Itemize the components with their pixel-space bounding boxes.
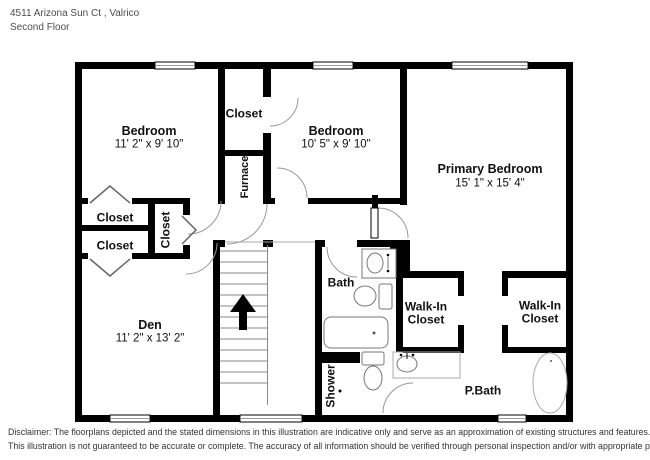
closet-hall-label: Closet [159, 212, 172, 249]
disclaimer-line2: This illustration is not guaranteed to b… [8, 441, 650, 451]
disclaimer-line1: Disclaimer: The floorplans depicted and … [8, 427, 650, 437]
walk-in-closet-right-label: Walk-In Closet [509, 300, 571, 327]
furnace-label: Furnace [239, 156, 251, 199]
closet-door-arc [270, 98, 298, 126]
shower-label: Shower [324, 364, 337, 407]
closet-left-upper-label: Closet [97, 211, 134, 224]
bath-sink-icon [362, 249, 396, 278]
bath-toilet-icon [354, 284, 392, 309]
wc-toilet-icon [362, 352, 384, 390]
staircase [220, 242, 315, 405]
bifold-closet-upper-icon [90, 186, 130, 203]
interior-walls [82, 69, 566, 415]
primary-bedroom-dims: 15' 1" x 15' 4" [455, 178, 524, 191]
bedroom1-label: Bedroom [122, 124, 177, 138]
den-dims: 11' 2" x 13' 2" [116, 333, 185, 346]
wc-door-arc [383, 383, 413, 413]
bedroom2-label: Bedroom [309, 124, 364, 138]
primary-bath-label: P.Bath [465, 384, 501, 397]
furnace-door-arc [227, 204, 267, 244]
pbath-vanity-sink-icon [393, 352, 460, 378]
stairs-up-arrow-icon [230, 294, 256, 330]
header-address: 4511 Arizona Sun Ct , Valrico [10, 8, 139, 19]
bifold-hall-closet-icon [182, 216, 196, 244]
bifold-closet-lower-icon [90, 259, 130, 276]
den-door-arc [186, 243, 217, 274]
closet-left-lower-label: Closet [97, 239, 134, 252]
closet-top-label: Closet [226, 107, 263, 120]
primary-door-leaf [371, 208, 378, 238]
bedroom2-dims: 10' 5" x 9' 10" [301, 139, 370, 152]
pbath-tub-icon [533, 353, 567, 413]
bedroom1-dims: 11' 2" x 9' 10" [115, 139, 184, 152]
bath-label: Bath [328, 276, 355, 289]
bath-door-arc [327, 247, 357, 277]
floorplan-page: 4511 Arizona Sun Ct , Valrico Second Flo… [0, 0, 650, 460]
primary-door-arc [378, 208, 408, 238]
header-floor: Second Floor [10, 22, 69, 33]
bedroom2-door-arc [277, 168, 307, 198]
primary-bedroom-label: Primary Bedroom [438, 162, 543, 176]
den-label: Den [138, 318, 162, 332]
shower-drain-icon [339, 390, 342, 393]
bathtub-icon [324, 317, 388, 348]
bedroom1-door-arc [188, 201, 221, 234]
walk-in-closet-left-label: Walk-In Closet [395, 301, 457, 328]
